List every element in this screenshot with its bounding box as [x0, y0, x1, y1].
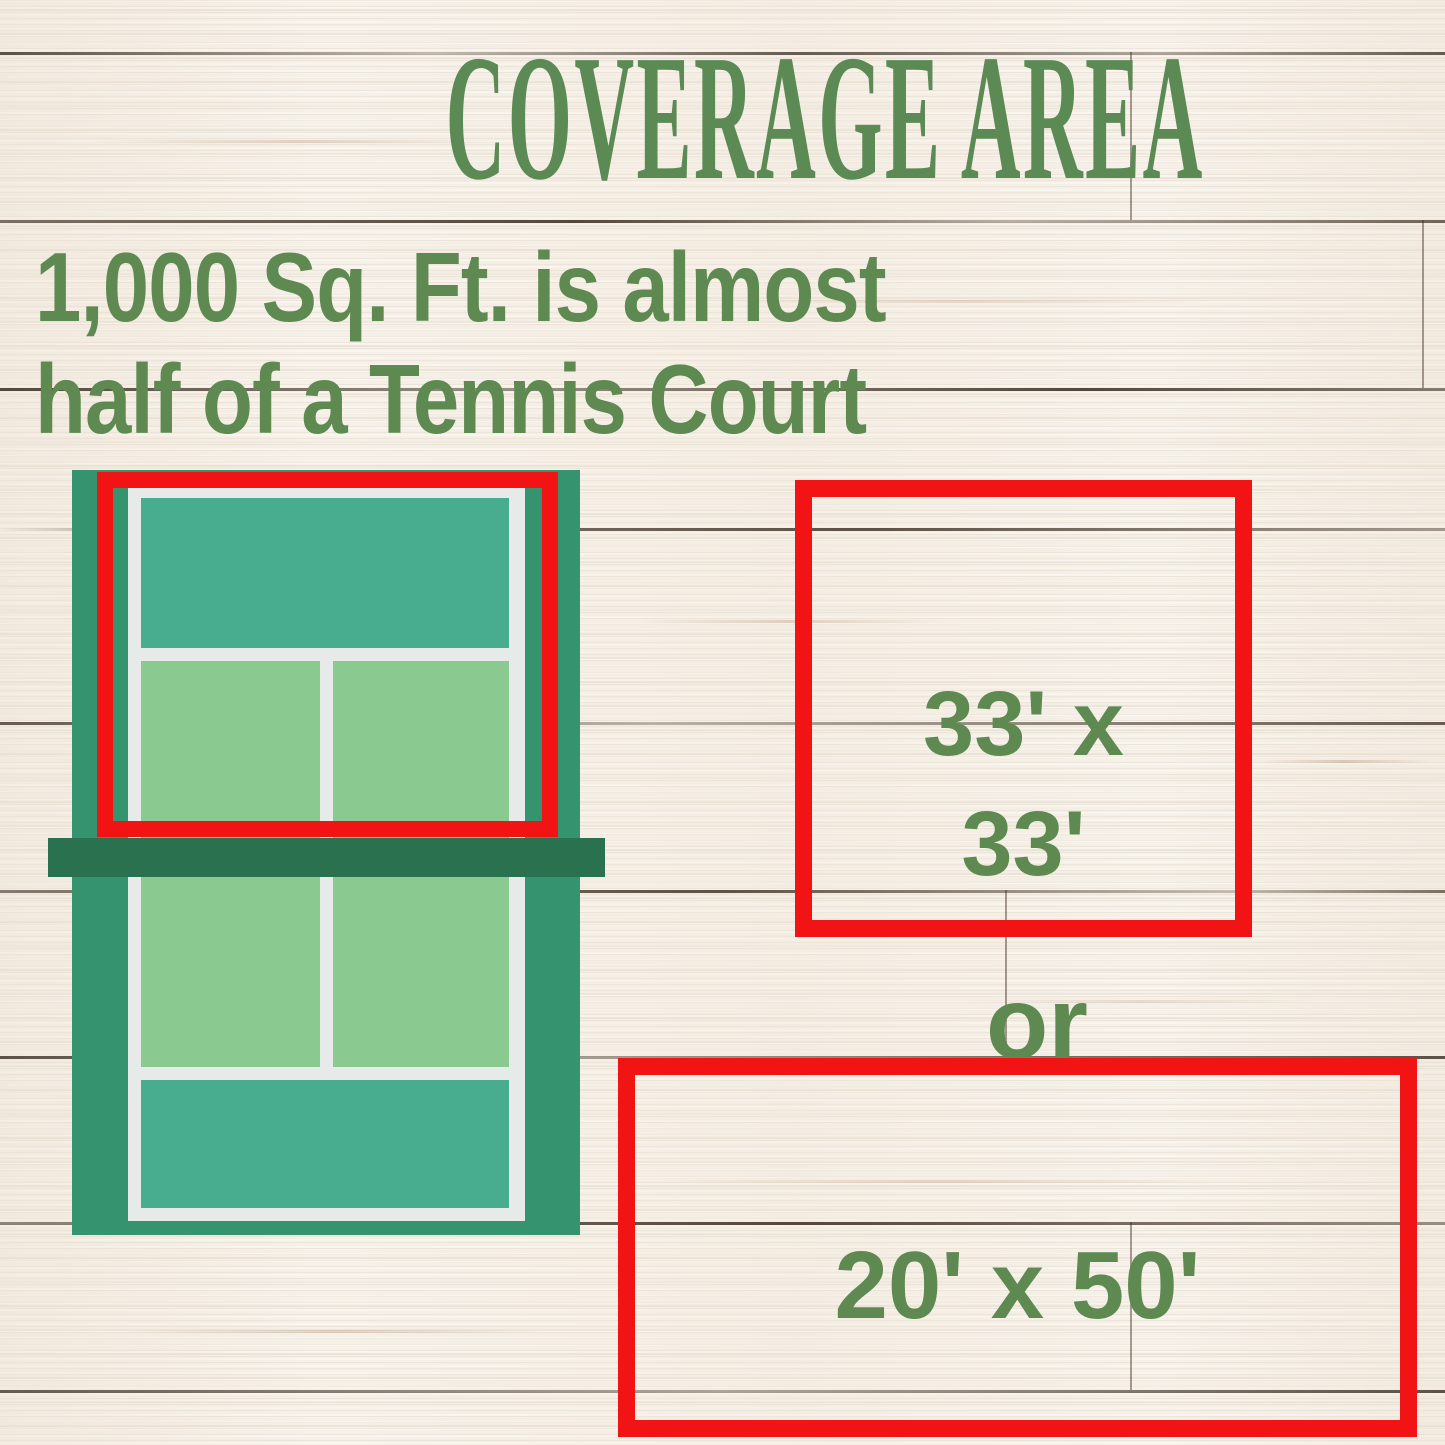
subtitle-line-2: half of a Tennis Court: [35, 344, 886, 456]
dimension-20x50-label: 20' x 50': [835, 1238, 1201, 1334]
court-service-box-bottom-right: [333, 877, 509, 1067]
wood-seam: [0, 220, 1445, 223]
subtitle: 1,000 Sq. Ft. is almost half of a Tennis…: [35, 232, 886, 455]
coverage-box-33x33: 33' x 33': [795, 480, 1252, 937]
tennis-court-illustration: [72, 470, 580, 1235]
wood-grain-streak: [120, 1330, 550, 1333]
court-service-box-bottom-left: [141, 877, 320, 1067]
court-backcourt-bottom: [141, 1080, 509, 1208]
dimension-33-line-1: 33' x: [923, 665, 1124, 785]
wood-plank-joint: [1422, 220, 1424, 388]
page-title-text: COVERAGE AREA: [446, 28, 1205, 208]
wood-grain-streak: [1260, 760, 1430, 763]
page-title: COVERAGE AREA: [0, 28, 1445, 208]
coverage-box-20x50: 20' x 50': [618, 1058, 1417, 1437]
subtitle-line-1: 1,000 Sq. Ft. is almost: [35, 232, 886, 344]
coverage-area-infographic: COVERAGE AREA 1,000 Sq. Ft. is almost ha…: [0, 0, 1445, 1445]
court-net-band: [48, 838, 605, 877]
coverage-highlight-outline: [97, 472, 558, 837]
dimension-33-line-2: 33': [961, 785, 1085, 905]
